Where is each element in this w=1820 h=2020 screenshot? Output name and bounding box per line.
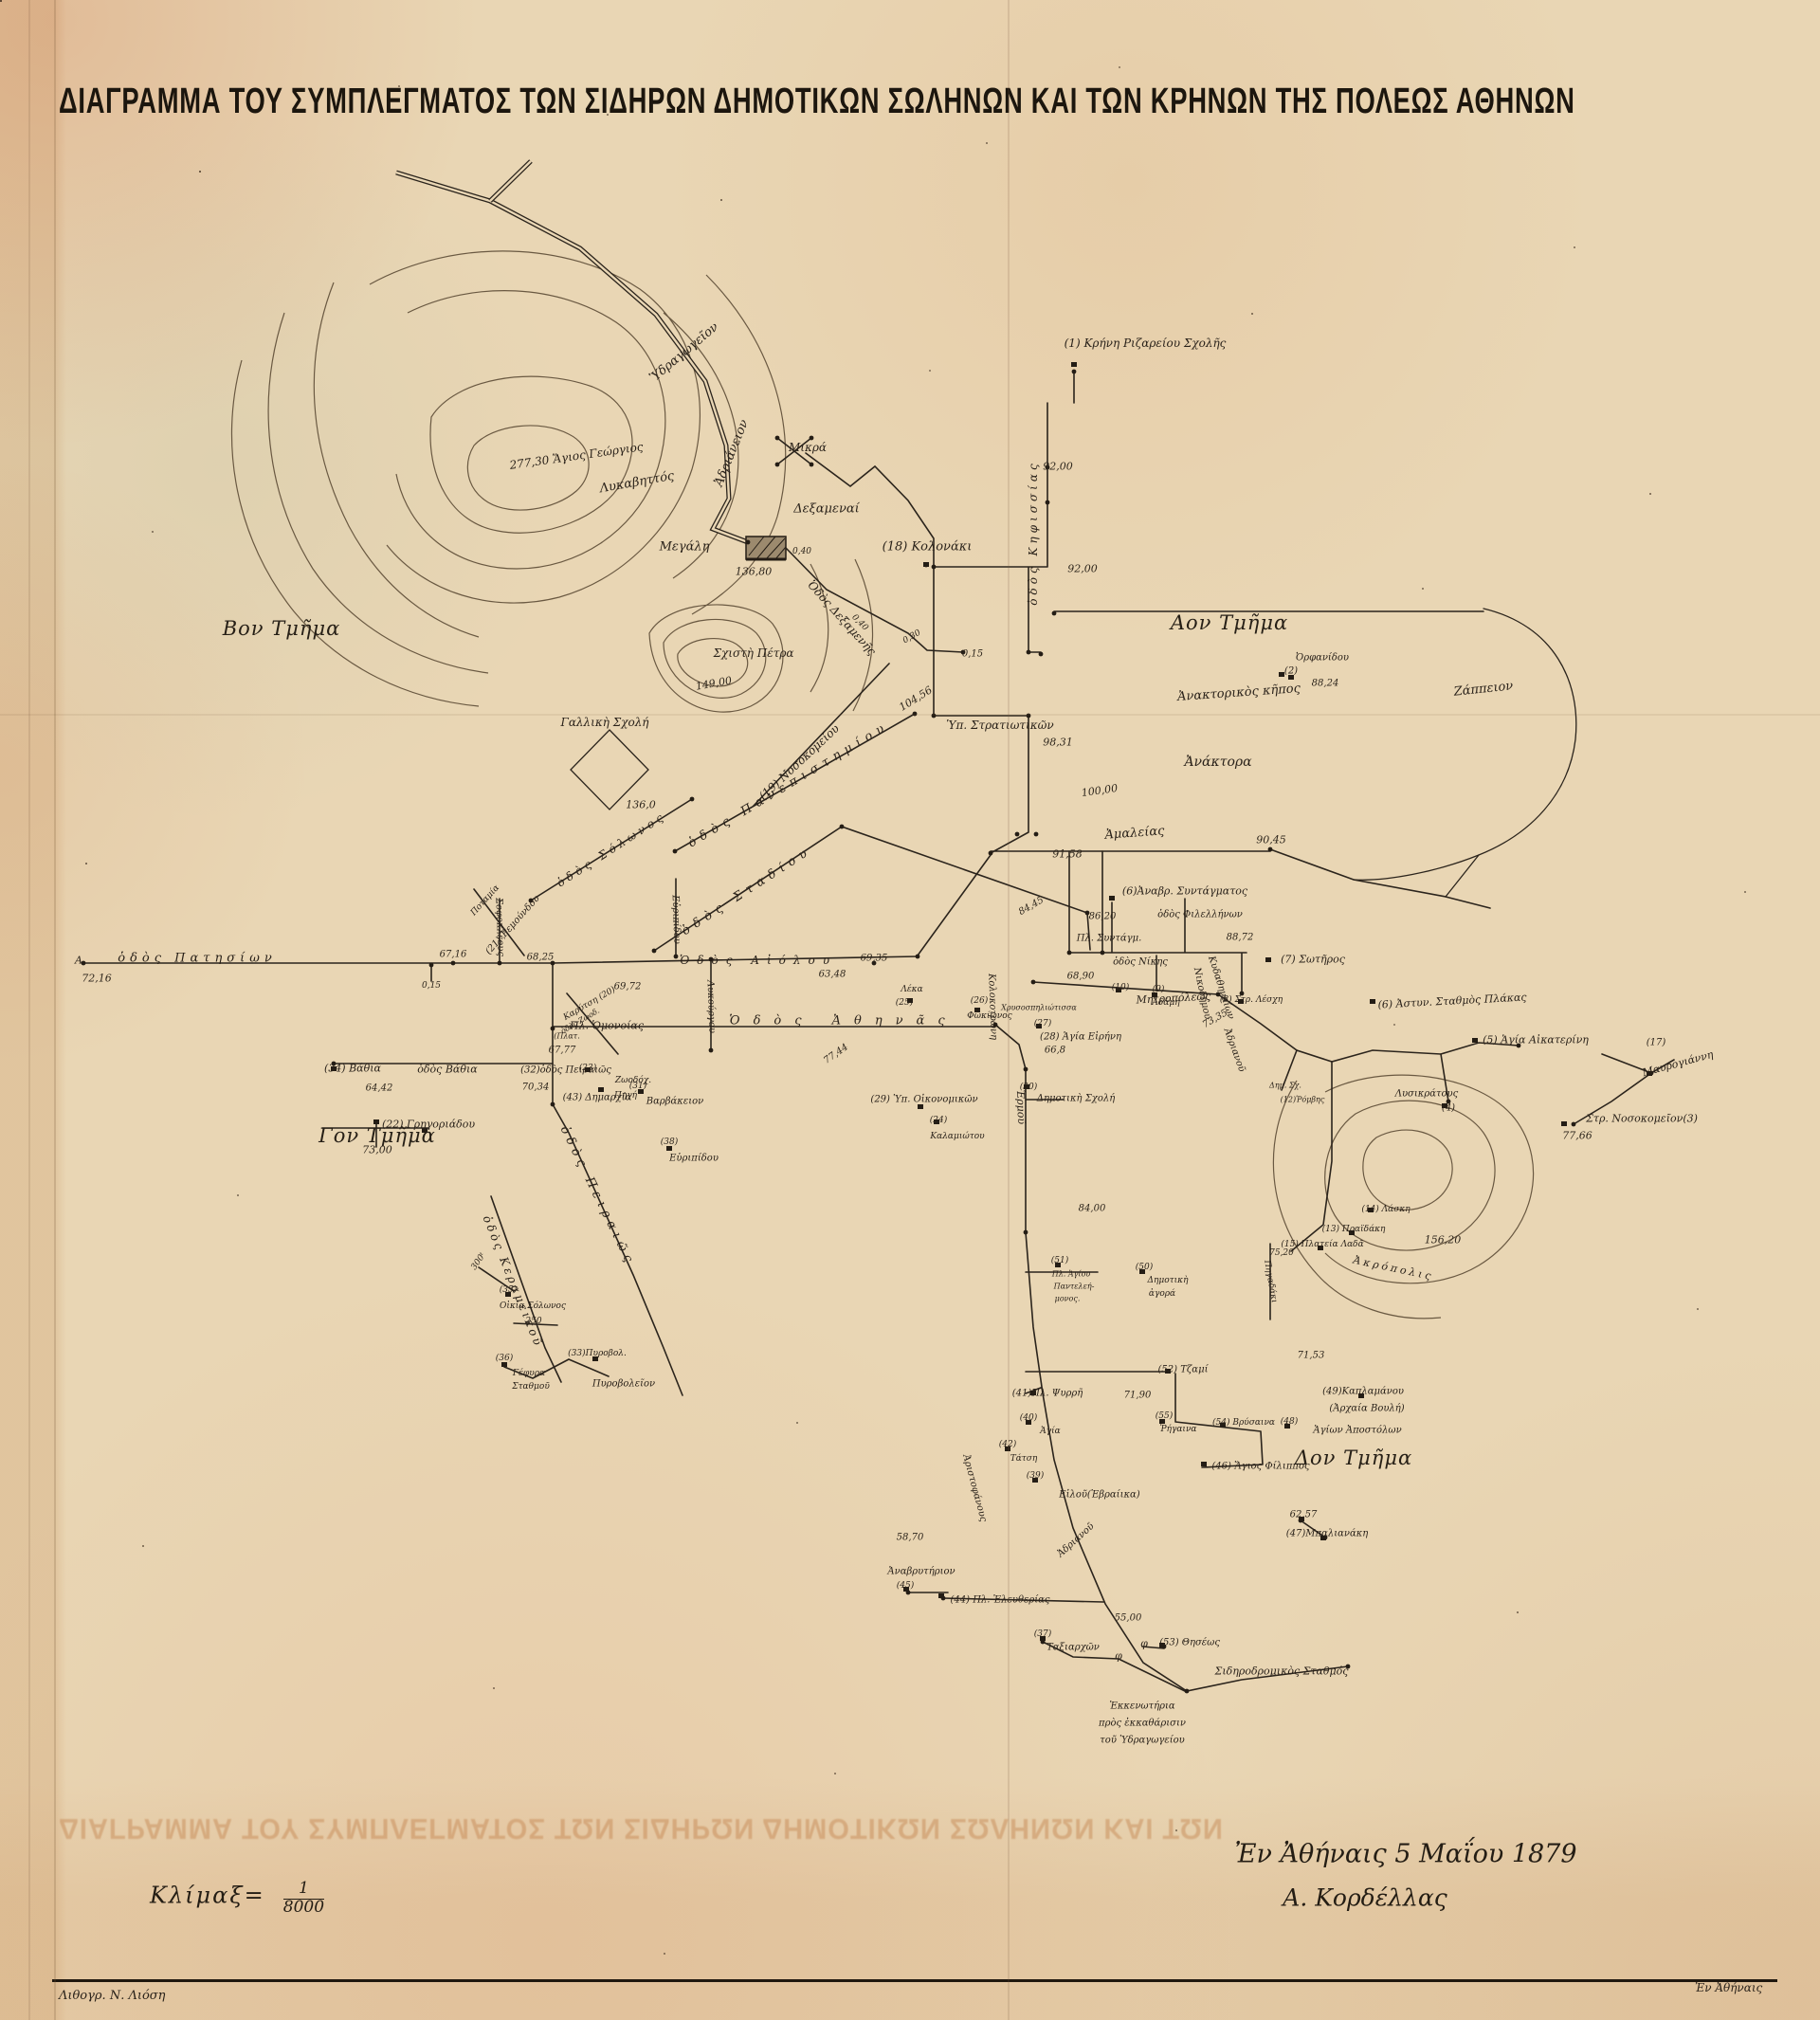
map-label: (26)	[971, 996, 988, 1006]
map-label: 71,53	[1298, 1351, 1325, 1361]
map-label: Μικρά	[789, 441, 827, 454]
map-label: 72,16	[82, 973, 112, 985]
map-label: Γέφυρα	[513, 1369, 545, 1378]
map-label: (2)	[1284, 666, 1298, 677]
map-label: (7) Σωτῆρος	[1281, 954, 1345, 966]
map-label: (40)	[1020, 1413, 1037, 1423]
map-label: (30)	[1020, 1083, 1037, 1092]
map-label: Ῥήγαινα	[1159, 1425, 1196, 1434]
credit-publisher: Ἐν Ἀθήναις	[1695, 1981, 1762, 1994]
map-label: (43) Δημαρχία	[563, 1093, 632, 1103]
map-label: (13) Πραϊδάκη	[1322, 1225, 1386, 1234]
map-label: Σιδηροδρομικὸς Σταθμός	[1215, 1665, 1349, 1678]
map-label: 91,58	[1052, 848, 1083, 861]
map-label: Σταθμοῦ	[512, 1382, 550, 1392]
fountain-symbol	[1109, 896, 1115, 901]
pipe-junction-dot	[1101, 951, 1105, 955]
map-label: Δεξαμεναί	[793, 502, 860, 517]
map-label: (Ἀρχαία Βουλή)	[1329, 1404, 1404, 1414]
map-label: φ	[1140, 1638, 1148, 1650]
map-label: 75,20	[1269, 1248, 1294, 1258]
map-label: 0,15	[962, 649, 983, 660]
pipe-junction-dot	[1067, 951, 1072, 955]
map-label: (1) Κρήνη Ριζαρείου Σχολῆς	[1065, 337, 1227, 350]
map-label: Χρυσοσπηλιώτισσα	[1001, 1004, 1077, 1012]
map-label: Ὑπ. Στρατιωτικῶν	[946, 719, 1053, 732]
map-label: 92,00	[1067, 563, 1098, 575]
map-label: (25)	[896, 998, 913, 1008]
map-label: ἀγορά	[1149, 1289, 1175, 1299]
pipe-junction-dot	[551, 1027, 555, 1031]
map-label: (12)Ῥόμβης	[1281, 1096, 1325, 1104]
map-label: Τάτση	[1010, 1454, 1038, 1464]
pipe-junction-dot	[840, 825, 845, 829]
map-label: ὁδὸς Βάθια	[417, 1064, 477, 1076]
map-label: τοῦ Ὑδραγωγείου	[1100, 1736, 1184, 1746]
map-label: (53) Θησέως	[1159, 1638, 1220, 1648]
map-label: 156,20	[1425, 1234, 1462, 1247]
map-label: (5) Ἁγία Αἰκατερίνη	[1483, 1034, 1589, 1046]
pipe-junction-dot	[690, 797, 695, 802]
map-label: (49)Καπλαμάνου	[1322, 1387, 1404, 1397]
map-label: Ἁγία	[1040, 1427, 1061, 1436]
map-label: Βαρβάκειον	[646, 1097, 703, 1107]
map-label: Σχιστὴ Πέτρα	[714, 646, 794, 660]
map-title: ΔΙΑΓΡΑΜΜΑ ΤΟΥ ΣΥΜΠΛΕΓΜΑΤΟΣ ΤΩΝ ΣΙΔΗΡΩΝ Δ…	[59, 82, 1575, 122]
map-label: (14) Λάσκη	[1361, 1205, 1410, 1214]
bottom-rule	[52, 1979, 1777, 1982]
pipe-junction-dot	[1072, 370, 1077, 374]
map-label: (36)	[496, 1354, 513, 1363]
pipe-junction-dot	[1027, 650, 1031, 655]
map-label: Καλαμιώτου	[930, 1132, 984, 1141]
map-label: Λυκούργου	[705, 980, 718, 1033]
map-label: ὁδὸς Κηφισσίας	[1027, 460, 1040, 605]
fold-crease-left	[28, 0, 30, 2020]
pipe-junction-dot	[989, 851, 993, 856]
map-label: (44) Πλ. Ἐλευθερίας	[951, 1595, 1050, 1606]
map-label: (37)	[1034, 1629, 1051, 1639]
map-label: Μεγάλη	[660, 540, 710, 555]
map-label: 68,25	[527, 953, 555, 963]
french-school-building	[571, 730, 648, 810]
map-label: Πλ. Συντάγμ.	[1077, 934, 1142, 944]
map-label: (24)	[930, 1116, 947, 1125]
pipe-junction-dot	[1031, 980, 1036, 985]
map-label: (29) Ὑπ. Οἰκονομικῶν	[870, 1095, 977, 1105]
map-label: Δημ. Σχ.	[1269, 1082, 1301, 1090]
map-label: (48)	[1281, 1417, 1298, 1427]
fountain-symbol	[918, 1104, 923, 1109]
pipe-junction-dot	[1268, 847, 1273, 852]
map-label: 67,16	[440, 950, 467, 960]
signature-place-date: Ἐν Ἀθήναις 5 Μαΐου 1879	[1234, 1840, 1576, 1869]
paper-specks	[0, 0, 2, 2]
map-label: Δημοτικὴ	[1148, 1276, 1189, 1285]
map-label: 84,00	[1079, 1204, 1106, 1214]
map-label: (17)	[1647, 1038, 1666, 1048]
map-label: Εὐριπίδου	[669, 1154, 719, 1164]
ghost-offset-title: ΔΙΑΓΡΑΜΜΑ ΤΟΥ ΣΥΜΠΛΕΓΜΑΤΟΣ ΤΩΝ ΣΙΔΗΡΩΝ Δ…	[59, 1811, 1224, 1846]
pipe-junction-dot	[498, 961, 502, 966]
map-label: Γαλλικὴ Σχολή	[561, 716, 649, 729]
map-label: (39)	[1027, 1471, 1044, 1481]
map-label: Ἁγίων Ἀποστόλων	[1313, 1426, 1401, 1436]
map-label: 136,80	[736, 566, 773, 578]
map-label: Δημοτικὴ Σχολή	[1037, 1094, 1115, 1104]
map-label: (Πλατ.	[554, 1032, 580, 1041]
map-label: 90,45	[1256, 834, 1286, 846]
map-label: 86,20	[1089, 912, 1117, 922]
pipe-junction-dot	[810, 463, 814, 467]
pipe-junction-dot	[551, 1102, 555, 1107]
pipe-junction-dot	[1572, 1122, 1576, 1127]
fountain-symbol	[1561, 1121, 1567, 1126]
map-label: (28) Ἁγία Εἰρήνη	[1040, 1032, 1121, 1043]
map-label: 69,72	[614, 982, 642, 992]
map-label: (38)	[661, 1137, 678, 1147]
pipe-junction-dot	[1034, 832, 1039, 837]
map-label: πρὸς ἐκκαθάρισιν	[1099, 1719, 1186, 1729]
map-label: 136,0	[626, 799, 656, 811]
map-label: Δον Τμῆμα	[1295, 1447, 1412, 1469]
map-label: Εὐριπίδου	[670, 895, 682, 944]
map-label: (4)	[1442, 1103, 1455, 1114]
map-label: Ἀναβρυτήριον	[887, 1567, 955, 1577]
map-label: Σοφοκλέους	[493, 898, 505, 956]
map-label: (6)Ἀναβρ. Συντάγματος	[1122, 885, 1247, 898]
pipe-junction-dot	[1185, 1689, 1190, 1694]
map-label: Γον Τμῆμα	[318, 1124, 436, 1147]
pipe-junction-dot	[810, 436, 814, 441]
map-label: (32)ὁδὸς Πειραιῶς	[520, 1065, 611, 1076]
map-label: Λυσικράτους	[1395, 1089, 1458, 1100]
map-label: μονος.	[1055, 1295, 1081, 1303]
map-label: 0,40	[792, 547, 811, 556]
pipe-junction-dot	[1039, 652, 1044, 657]
map-label: Φωκίωνος	[967, 1011, 1011, 1021]
map-label: 66,8	[1045, 1046, 1065, 1056]
pipe-junction-dot	[1024, 1230, 1028, 1235]
fold-crease-center	[1008, 0, 1010, 2020]
pipe-junction-dot	[709, 1048, 714, 1053]
map-label: (33)Πυροβολ.	[568, 1349, 627, 1358]
pipe-junction-dot	[932, 565, 937, 570]
pipe-junction-dot	[1046, 500, 1050, 505]
map-label: Εἰλοῦ(Ἑβραίικα)	[1059, 1490, 1139, 1501]
map-label: Λέκα	[901, 985, 922, 994]
fountain-symbol	[1201, 1462, 1207, 1466]
map-label: Α	[75, 955, 82, 967]
map-label: (50)	[1136, 1263, 1153, 1272]
map-label: ὁδὸς Νίκης	[1113, 957, 1168, 968]
margin-edge	[54, 0, 56, 2020]
pipe-junction-dot	[775, 436, 780, 441]
pipe-junction-dot	[775, 463, 780, 467]
map-label: 62,57	[1290, 1510, 1318, 1520]
map-label: 88,72	[1227, 933, 1254, 943]
fountain-symbol	[598, 1087, 604, 1092]
map-label: (10)	[1112, 983, 1129, 992]
pipe-junction-dot	[673, 849, 678, 854]
pipe-junction-dot	[1024, 1067, 1028, 1072]
map-label: Βον Τμῆμα	[223, 617, 341, 640]
scale-label: Κλίμαξ=	[150, 1882, 265, 1908]
fountain-symbol	[938, 1593, 944, 1598]
map-label: 68,90	[1067, 972, 1095, 982]
fountain-symbol	[1370, 999, 1375, 1004]
pipe-junction-dots	[82, 370, 1654, 1694]
map-label: (31)	[629, 1082, 646, 1091]
map-label: φ	[1115, 1650, 1122, 1663]
map-label: Αον Τμῆμα	[1171, 611, 1288, 634]
map-label: 98,31	[1043, 737, 1073, 749]
map-label: (51)	[1051, 1256, 1068, 1265]
map-label: (34) Βάθια	[324, 1063, 381, 1075]
map-label: 88,24	[1312, 679, 1339, 689]
map-label: Πλ. Ἁγίου	[1052, 1270, 1091, 1279]
map-label: 0,15	[422, 981, 441, 991]
map-label: 70,34	[522, 1083, 550, 1093]
map-label: ὁδὸς Φιλελλήνων	[1157, 910, 1243, 920]
map-label: Οἰκία Σόλωνος	[500, 1301, 566, 1311]
credit-lithographer: Λιθογρ. Ν. Λιόση	[59, 1989, 165, 2003]
map-label: (45)	[897, 1581, 914, 1591]
map-label: Πλ. Ὁμονοίας	[570, 1020, 644, 1032]
map-label: Ἀνάκτορα	[1184, 755, 1251, 770]
pipe-junction-dot	[451, 961, 456, 966]
map-label: Ὀρφανίδου	[1296, 653, 1349, 664]
map-label: Ἑρμοῦ	[1014, 1090, 1028, 1125]
map-label: 58,70	[897, 1533, 924, 1543]
scale-statement: Κλίμαξ= 1 8000	[150, 1881, 324, 1917]
fountain-symbol	[1265, 957, 1271, 962]
map-label: Ταξιαρχῶν	[1046, 1643, 1100, 1653]
map-label: (52) Τζαμί	[1158, 1365, 1209, 1375]
map-label: (54) Βρύσαινα	[1212, 1418, 1275, 1428]
map-label: Πυροβολεῖον	[592, 1379, 655, 1390]
pipe-junction-dot	[1015, 832, 1020, 837]
map-label: (18) Κολονάκι	[883, 540, 973, 555]
signature-author: Α. Κορδέλλας	[1283, 1884, 1447, 1912]
map-label: Παντελεή-	[1054, 1283, 1095, 1291]
map-label: 92,00	[1043, 461, 1073, 473]
fountain-symbol	[923, 562, 929, 567]
map-label: 77,66	[1562, 1130, 1592, 1142]
map-label: ὁδὸς Πατησίων	[118, 952, 276, 966]
map-label: 63,48	[819, 970, 846, 980]
pipe-network	[83, 372, 1674, 1691]
map-label: (27)	[1034, 1019, 1051, 1028]
map-label: (47)Μπαλιανάκη	[1286, 1529, 1368, 1539]
map-label: 71,90	[1124, 1391, 1152, 1401]
scale-fraction: 1 8000	[283, 1881, 324, 1917]
map-label: 69,35	[861, 954, 888, 964]
pipe-junction-dot	[429, 963, 434, 968]
map-linework-svg	[0, 0, 1820, 2020]
fold-crease-horizontal	[0, 714, 1820, 716]
map-sheet: ΔΙΑΓΡΑΜΜΑ ΤΟΥ ΣΥΜΠΛΕΓΜΑΤΟΣ ΤΩΝ ΣΙΔΗΡΩΝ Δ…	[0, 0, 1820, 2020]
map-label: Στρ. Νοσοκομεῖον(3)	[1586, 1113, 1698, 1125]
fountain-symbol	[1071, 362, 1077, 367]
pipe-junction-dot	[916, 955, 920, 959]
pipe-junction-dot	[746, 540, 751, 545]
pipe-junction-dot	[674, 955, 679, 959]
pipe-junction-dot	[652, 949, 657, 954]
map-label: Ἐκκενωτήρια	[1109, 1702, 1174, 1712]
fountain-symbol	[1472, 1038, 1478, 1043]
pipe-junction-dot	[1052, 611, 1057, 616]
map-label: Ὁδὸς Αἰόλου	[680, 954, 837, 967]
contour-lines	[231, 251, 1533, 1319]
scale-denominator: 8000	[283, 1898, 324, 1917]
map-label: (55)	[1156, 1411, 1173, 1421]
map-label: 55,00	[1115, 1613, 1142, 1624]
map-label: 64,42	[366, 1083, 393, 1094]
map-label: 67,77	[549, 1046, 576, 1056]
map-label: Ὁδὸς Ἀθηνᾶς	[729, 1014, 957, 1028]
map-label: (41)Πλ. Ψυρρῆ	[1012, 1389, 1083, 1399]
